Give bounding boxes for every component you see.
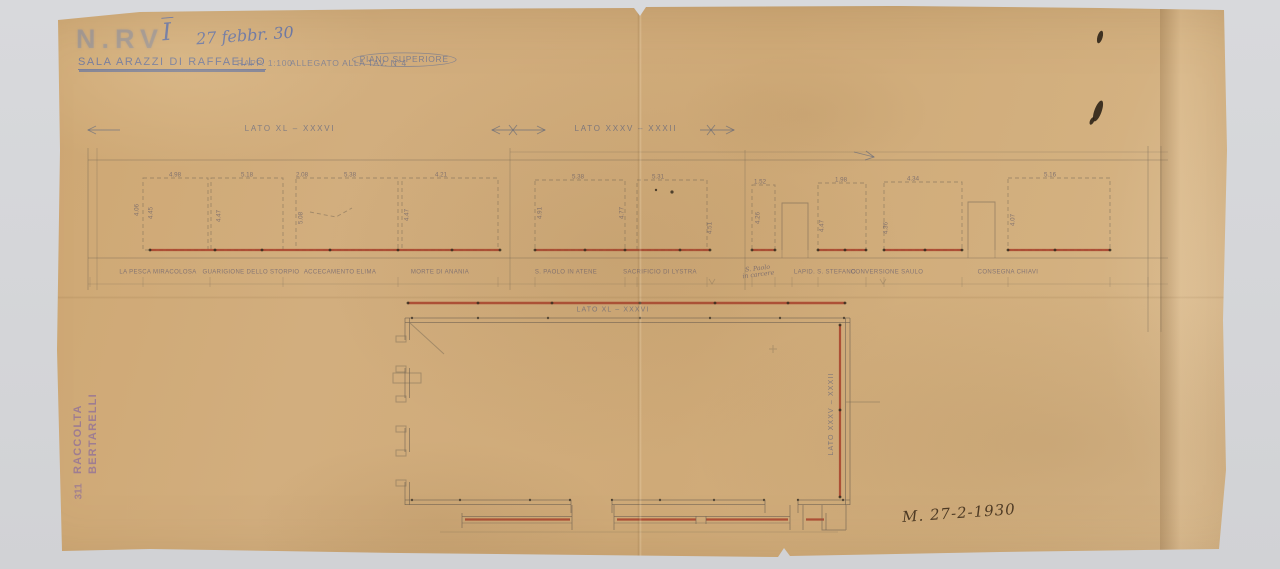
tapestry-panel-outlines <box>143 178 1110 250</box>
drawing-sheet: N.RV I̅ 27 febbr. 30 SALA ARAZZI DI RAFF… <box>0 0 1280 569</box>
red-hanging-lines <box>150 250 1110 520</box>
drawing-linework <box>0 0 1280 569</box>
ink-blots <box>1088 30 1105 125</box>
floor-plan-walls <box>393 318 880 532</box>
section-arrows <box>88 125 874 160</box>
pin-dots <box>149 189 1112 501</box>
scanned-drawing-background: N.RV I̅ 27 febbr. 30 SALA ARAZZI DI RAFF… <box>0 0 1280 569</box>
